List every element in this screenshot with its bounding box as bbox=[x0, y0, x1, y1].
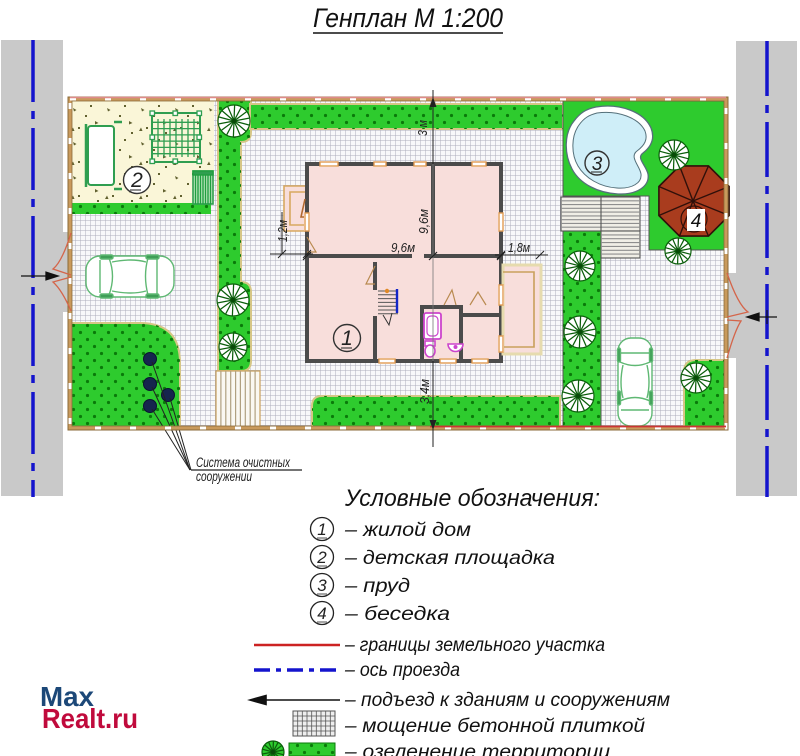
svg-text:Система очистных: Система очистных bbox=[196, 455, 291, 470]
svg-text:2: 2 bbox=[130, 169, 143, 192]
svg-text:– детская площадка: – детская площадка bbox=[344, 548, 555, 569]
svg-text:1: 1 bbox=[341, 327, 353, 350]
svg-text:– беседка: – беседка bbox=[344, 604, 450, 625]
svg-text:– ось проезда: – ось проезда bbox=[344, 660, 460, 681]
svg-text:– мощение бетонной плиткой: – мощение бетонной плиткой bbox=[344, 716, 646, 737]
svg-text:Генплан М 1:200: Генплан М 1:200 bbox=[313, 3, 503, 33]
svg-text:Условные обозначения:: Условные обозначения: bbox=[344, 485, 600, 512]
svg-text:– озеленение территории: – озеленение территории bbox=[344, 742, 611, 756]
svg-text:4: 4 bbox=[691, 211, 702, 232]
svg-text:– подъезд к зданиям и сооружен: – подъезд к зданиям и сооружениям bbox=[344, 690, 670, 711]
svg-text:2: 2 bbox=[316, 548, 327, 567]
svg-text:Realt.ru: Realt.ru bbox=[42, 703, 138, 734]
svg-text:3 м: 3 м bbox=[415, 120, 430, 136]
svg-text:3,4м: 3,4м bbox=[417, 379, 432, 404]
svg-text:4: 4 bbox=[317, 604, 326, 623]
svg-text:– границы земельного участка: – границы земельного участка bbox=[344, 635, 605, 656]
svg-text:– пруд: – пруд bbox=[344, 576, 410, 597]
svg-text:1,2м: 1,2м bbox=[275, 220, 290, 242]
svg-text:9,6м: 9,6м bbox=[416, 209, 431, 234]
svg-text:3: 3 bbox=[317, 576, 327, 595]
svg-text:9,6м: 9,6м bbox=[391, 240, 415, 255]
svg-text:1,8м: 1,8м bbox=[508, 240, 530, 255]
svg-text:1: 1 bbox=[317, 520, 326, 539]
svg-text:– жилой дом: – жилой дом bbox=[344, 520, 471, 541]
svg-text:сооружении: сооружении bbox=[196, 469, 252, 484]
